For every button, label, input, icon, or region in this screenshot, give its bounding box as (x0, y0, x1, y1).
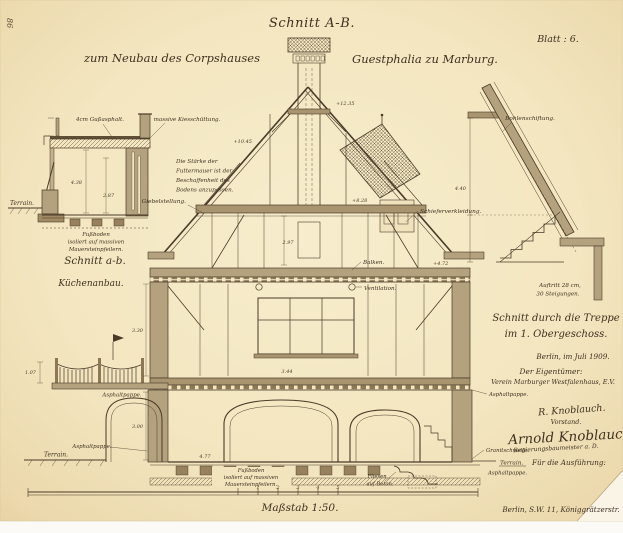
dimension-label: 4.77 (198, 454, 211, 460)
label-asphaltpappe-fence: Asphaltpappe. (101, 393, 141, 399)
floor-note-line: isoliert auf massiven (224, 475, 278, 481)
flat-roof-slab (50, 139, 150, 148)
floor-pier (92, 219, 102, 226)
floor-note-line: Fußboden (81, 232, 110, 238)
dimension-label: 4.38 (70, 180, 82, 186)
label-terrain: Terrain. (10, 200, 34, 207)
floor-note-line: Fußboden (237, 468, 265, 474)
futtermauer-note-line: Beschaffenheit des (175, 178, 230, 184)
retaining-wall (42, 190, 58, 214)
vent-pipe (56, 118, 59, 136)
dimension-label: 2.97 (281, 240, 294, 246)
first-floor-band (150, 378, 470, 385)
fence-post (98, 358, 101, 383)
collar-beam (288, 109, 330, 114)
stair-wall (594, 246, 602, 300)
fence-base-wall (52, 383, 168, 389)
wall-slot (132, 152, 134, 210)
label-giebelstellung: Giebelstellung. (142, 199, 187, 205)
second-floor-band (150, 268, 470, 277)
dimension-label: 3.44 (281, 369, 292, 375)
window-sill (254, 354, 358, 358)
owner-name: Verein Marburger Westfalenhaus, E.V. (491, 378, 615, 386)
label-balken: Balken. (362, 260, 385, 266)
scale-tick-label: 3 (296, 485, 299, 491)
futtermauer-note-line: Die Stärke der (175, 159, 218, 165)
scale-tick-label: 1 (256, 485, 259, 491)
upper-right-wall (452, 282, 470, 378)
asphalt-layer (50, 136, 150, 139)
chimney-cap (288, 38, 330, 52)
parapet (140, 114, 150, 138)
scale-tick-label: 4 (315, 485, 319, 491)
detail-subtitle: Küchenanbau. (57, 279, 123, 289)
stair-eaves-cornice (560, 238, 604, 246)
landing-beam (468, 112, 500, 118)
attic-floor-band (196, 205, 426, 213)
floor-note-line: Mauersteinpfeilern. (224, 482, 278, 488)
label-terrain-left: Terrain. (44, 452, 68, 459)
dimension-label: +10.45 (233, 139, 252, 145)
eaves-cornice-left (148, 252, 174, 259)
sheet-number: Blatt : 6. (536, 34, 579, 45)
scale-tick-label: 2 (275, 485, 279, 491)
stair-detail-title-line: Schnitt durch die Treppe (492, 313, 619, 324)
dimension-label: 3.00 (132, 424, 144, 430)
ground-right-wall (452, 390, 472, 462)
dimension-label: +4.72 (433, 261, 448, 267)
wall-slot (138, 156, 140, 214)
label-auftritt-line: 30 Steigungen. (536, 292, 579, 298)
drawing-title: Schnitt A-B. (269, 16, 355, 31)
signature-vorstand-role: Vorstand. (551, 418, 582, 426)
floor-note-line: Mauersteinpfeilern. (68, 247, 124, 253)
dimension-label: 3.30 (132, 328, 144, 334)
label-asphaltpappe-right2: Asphaltpappe. (487, 471, 527, 477)
stair-detail-title-line: im 1. Obergeschoss. (505, 329, 608, 340)
eaves-cornice-right (444, 252, 484, 259)
fence-post (141, 358, 144, 383)
office-address: Berlin, S.W. 11, Königgrätzerstr. (501, 505, 619, 514)
detail-title: Schnitt a-b. (64, 255, 126, 267)
dimension-label: +8.28 (352, 198, 367, 204)
dimension-label: 1.07 (25, 370, 37, 376)
label-schieferverkleidung: Schieferverkleidung. (420, 209, 482, 215)
futtermauer-note-line: Bodens anzupassen. (175, 188, 234, 194)
ground-hatch (150, 478, 212, 485)
date-line: Berlin, im Juli 1909. (535, 352, 609, 361)
label-kies: massive Kiesschüttung. (154, 117, 221, 123)
label-bohlenschiftung: Bohlenschiftung. (504, 116, 555, 122)
architectural-section-drawing: 86 Schnitt A-B. Blatt : 6. zum Neubau de… (0, 0, 623, 533)
scale-tick-label: 5 (336, 485, 339, 491)
floor-pier (70, 219, 80, 226)
label-asphaltpappe-right: Asphaltpappe. (488, 392, 528, 398)
label-ventilation: Ventilation. (364, 286, 397, 292)
dimension-label: +12.35 (336, 101, 355, 107)
label-auftritt-line: Auftritt 28 cm, (538, 283, 581, 289)
dormer-finial (381, 114, 384, 117)
floor-note-line: isoliert auf massiven (68, 240, 125, 246)
label-fliesen-line: Fliesen (366, 474, 386, 480)
floor-pier (114, 219, 124, 226)
futtermauer-note-line: Futtermauer ist der (175, 169, 233, 175)
dimension-label: 2.87 (102, 193, 115, 199)
owner-heading: Der Eigentümer: (519, 367, 583, 376)
archive-stamp: 86 (5, 18, 14, 28)
dimension-label: 4.40 (454, 186, 467, 192)
label-fliesen-line: auf Beton. (366, 482, 393, 488)
scale-label: Maßstab 1:50. (261, 502, 339, 514)
project-title-left: zum Neubau des Corpshauses (83, 51, 260, 65)
label-gussasphalt: 4cm Gußasphalt. (75, 117, 124, 123)
label-terrain-right: Terrain. (500, 461, 523, 467)
fence-post (55, 358, 58, 383)
upper-left-wall (150, 282, 168, 378)
annex-right-wall (126, 148, 148, 216)
beam-end-row (150, 277, 470, 282)
scanned-drawing-page: 86 Schnitt A-B. Blatt : 6. zum Neubau de… (0, 0, 623, 533)
project-title-right: Guestphalia zu Marburg. (352, 52, 498, 66)
beam-end-row (150, 385, 470, 390)
execution-heading: Für die Ausführung: (531, 458, 606, 467)
label-asphaltpappe-left: Asphaltpappe. (71, 444, 111, 450)
